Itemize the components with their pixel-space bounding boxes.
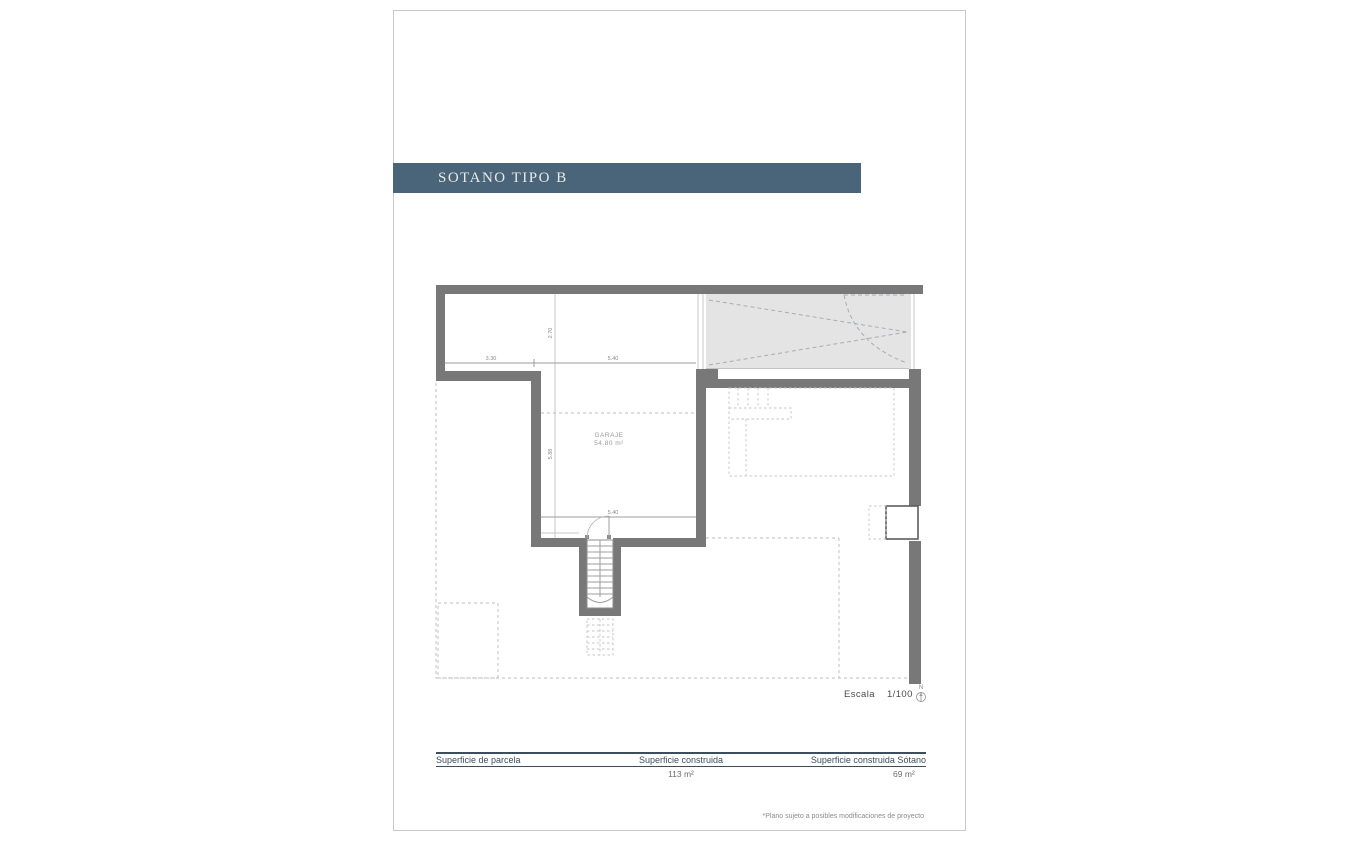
dim-upper-height: 2.70 bbox=[548, 328, 554, 339]
north-letter: N bbox=[919, 685, 923, 691]
floor-plan-drawing: 3.30 5.40 2.70 5.88 5.40 GARAJE 54.80 m² bbox=[394, 11, 967, 832]
upper-floor-projection bbox=[729, 388, 894, 476]
wall-opening-lines bbox=[698, 294, 703, 369]
dim-top-right: 5.40 bbox=[608, 356, 619, 362]
staircase-dashed-continuation bbox=[587, 619, 613, 655]
value-sotano: 69 m² bbox=[764, 769, 926, 779]
table-value-row: 113 m² 69 m² bbox=[436, 767, 926, 781]
dim-bottom: 5.40 bbox=[608, 510, 619, 516]
garage-door bbox=[541, 516, 611, 539]
surface-table: Superficie de parcela Superficie constru… bbox=[436, 752, 926, 781]
dimension-labels: 3.30 5.40 2.70 5.88 5.40 bbox=[486, 328, 619, 516]
footnote: *Plano sujeto a posibles modificaciones … bbox=[763, 813, 925, 820]
screenshot-canvas: SOTANO TIPO B bbox=[0, 0, 1360, 850]
table-header-row: Superficie de parcela Superficie constru… bbox=[436, 754, 926, 766]
table-header-sotano: Superficie construida Sótano bbox=[764, 755, 926, 765]
property-boundary bbox=[436, 383, 909, 678]
table-header-construida: Superficie construida bbox=[598, 755, 765, 765]
scale-block: Escala 1/100 bbox=[844, 689, 913, 700]
staircase bbox=[587, 540, 613, 608]
dim-top-left: 3.30 bbox=[486, 356, 497, 362]
garage-interior-lines bbox=[445, 294, 696, 538]
table-header-parcela: Superficie de parcela bbox=[436, 755, 598, 765]
ramp-area bbox=[706, 294, 914, 369]
north-arrow-icon: N bbox=[917, 685, 926, 702]
plan-sheet: SOTANO TIPO B bbox=[393, 10, 966, 831]
value-construida: 113 m² bbox=[598, 769, 765, 779]
room-name: GARAJE bbox=[594, 432, 623, 439]
room-area: 54.80 m² bbox=[594, 440, 624, 447]
garage-room-label: GARAJE 54.80 m² bbox=[594, 432, 624, 447]
dim-garage-height: 5.88 bbox=[548, 449, 554, 460]
scale-label: Escala bbox=[844, 689, 875, 700]
scale-value: 1/100 bbox=[887, 689, 913, 700]
wall-niche bbox=[869, 506, 918, 539]
